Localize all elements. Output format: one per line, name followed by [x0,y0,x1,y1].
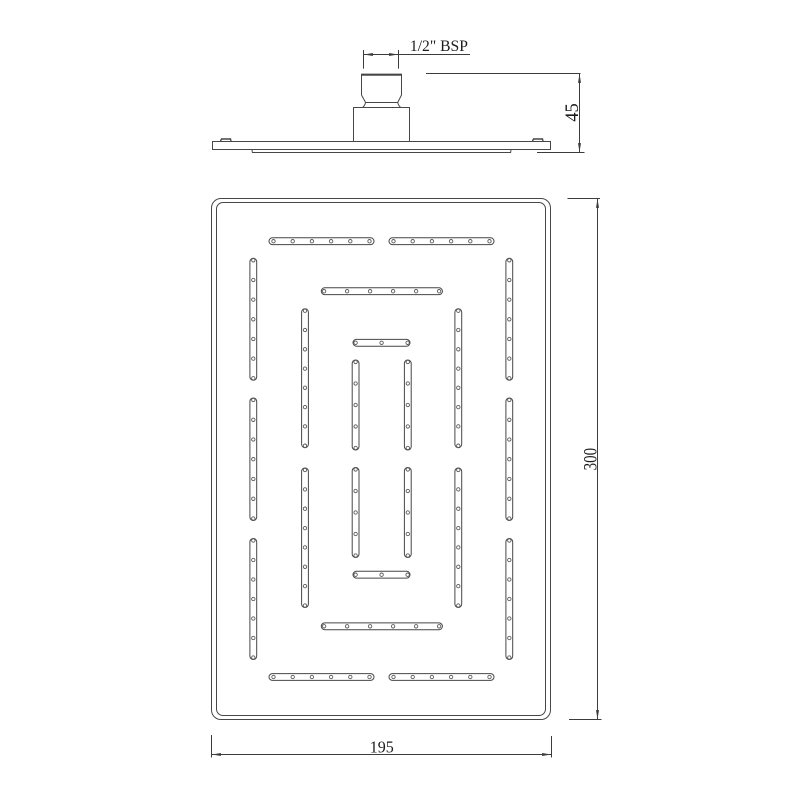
svg-text:300: 300 [582,448,602,471]
svg-text:1/2" BSP: 1/2" BSP [410,38,468,55]
svg-text:45: 45 [563,103,583,122]
svg-text:195: 195 [370,738,394,757]
